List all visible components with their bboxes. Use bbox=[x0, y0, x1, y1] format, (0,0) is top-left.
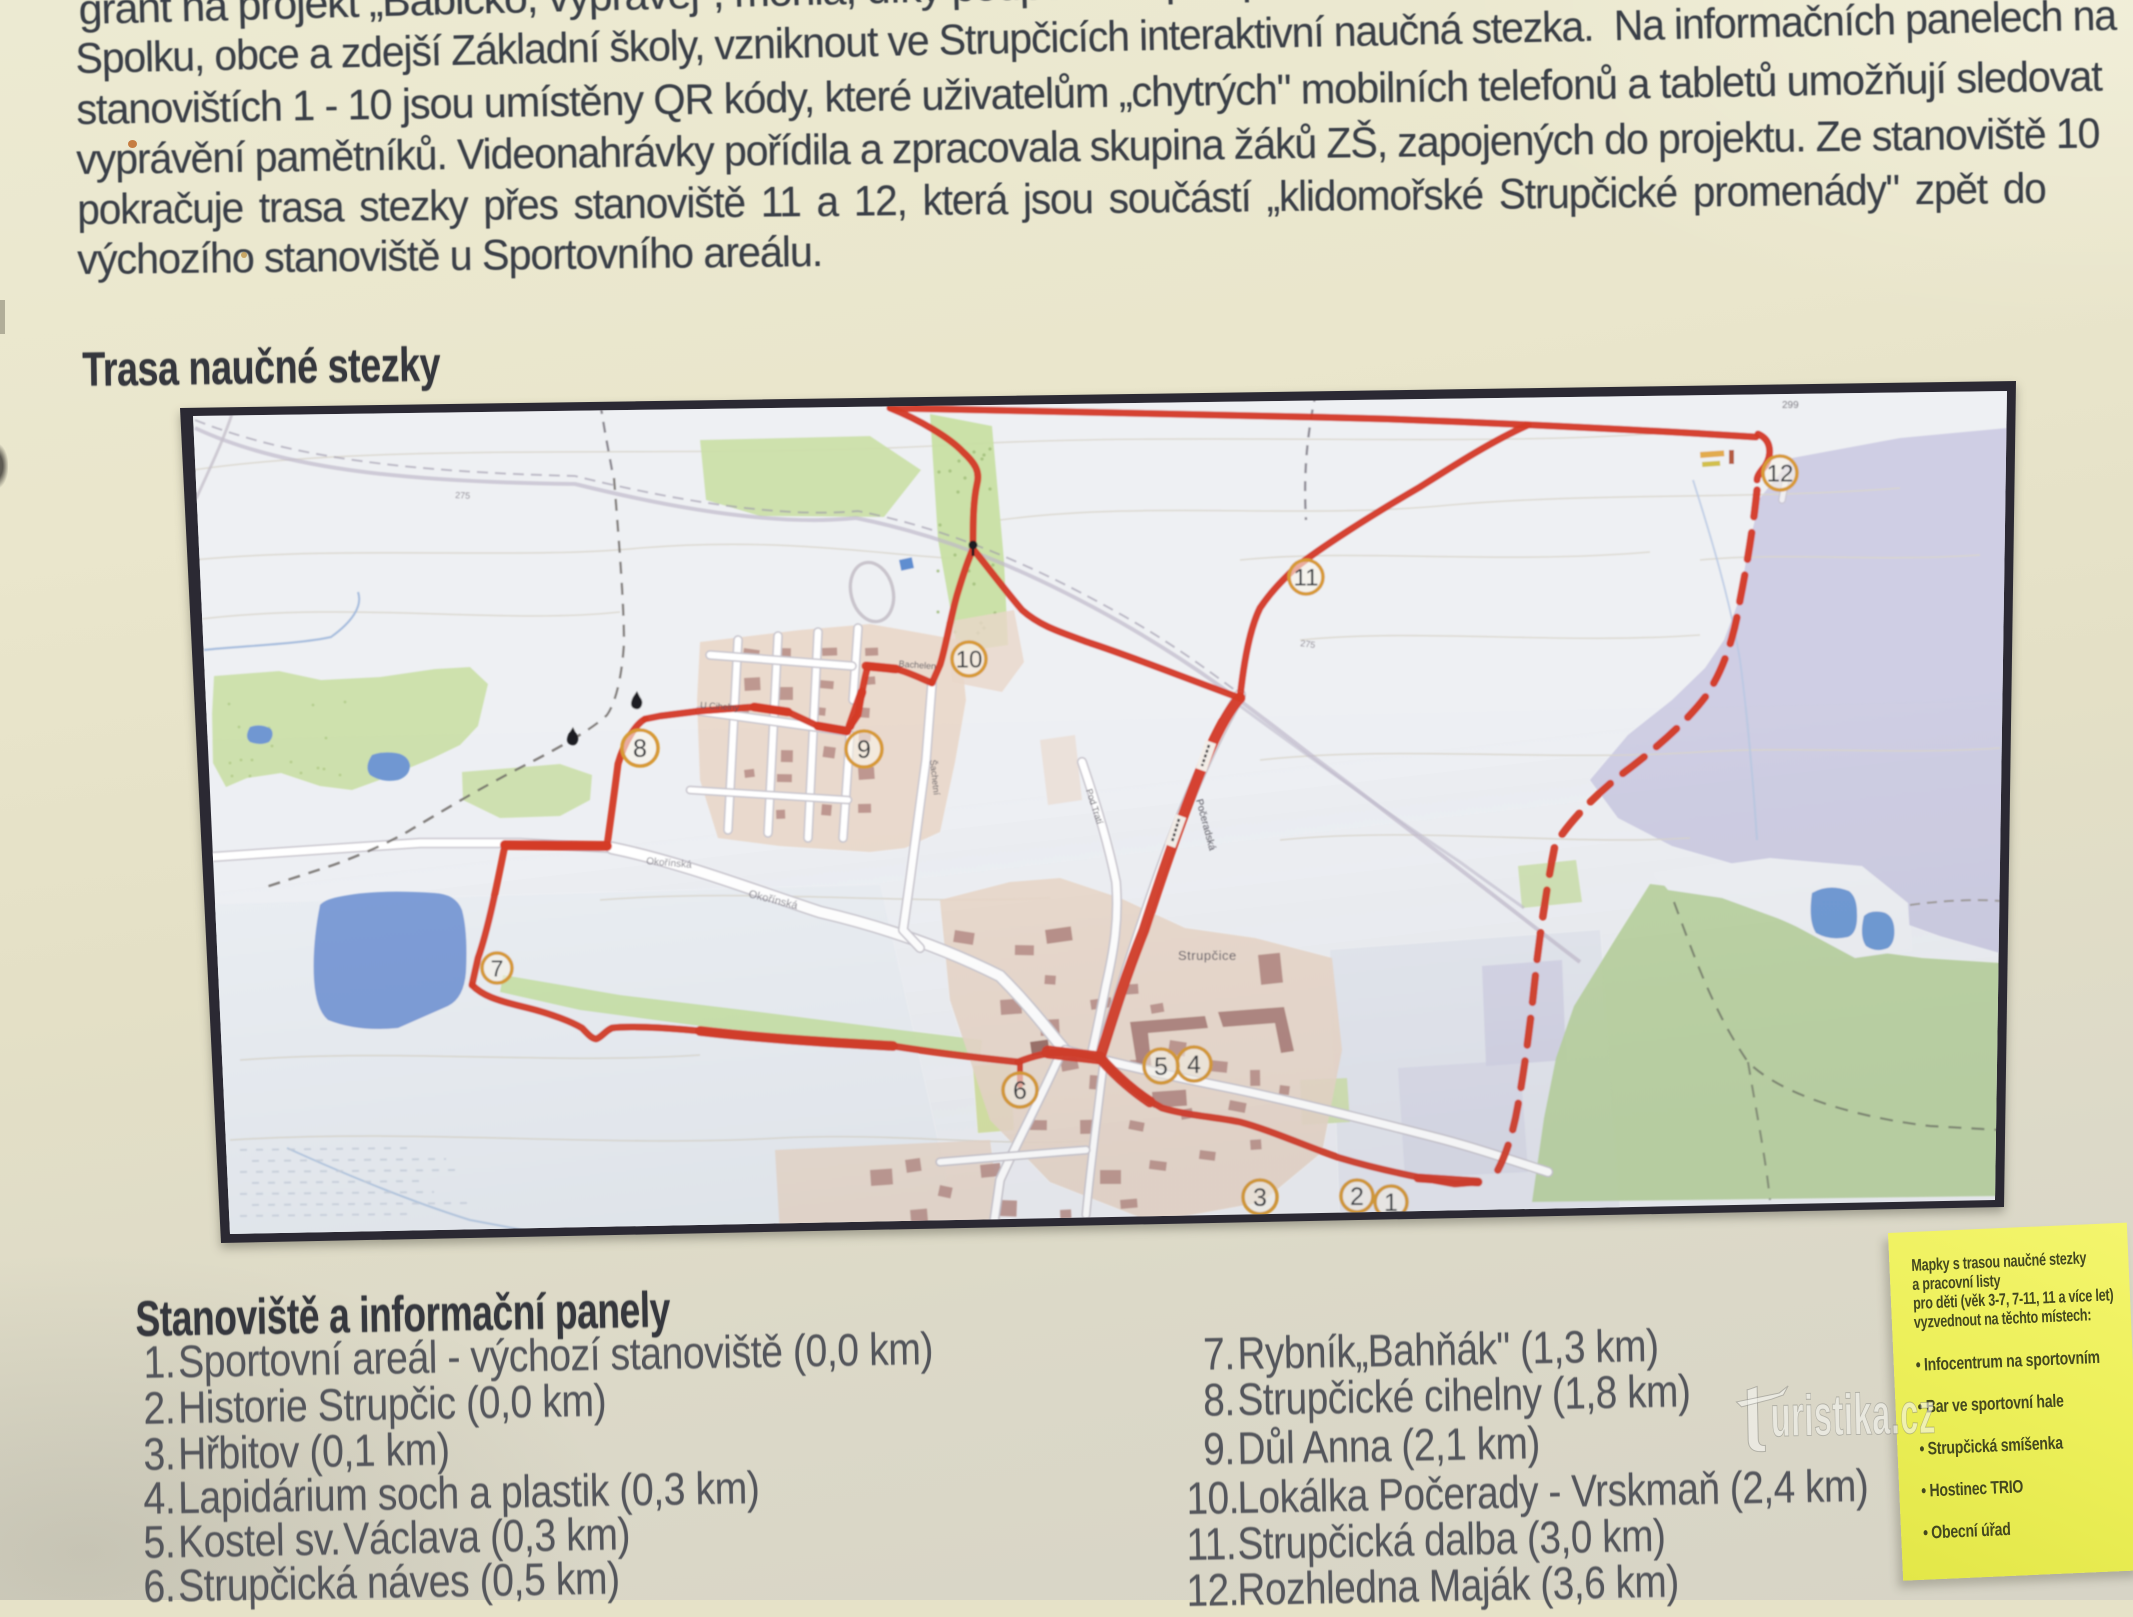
svg-text:uristika.cz: uristika.cz bbox=[1770, 1380, 1936, 1449]
